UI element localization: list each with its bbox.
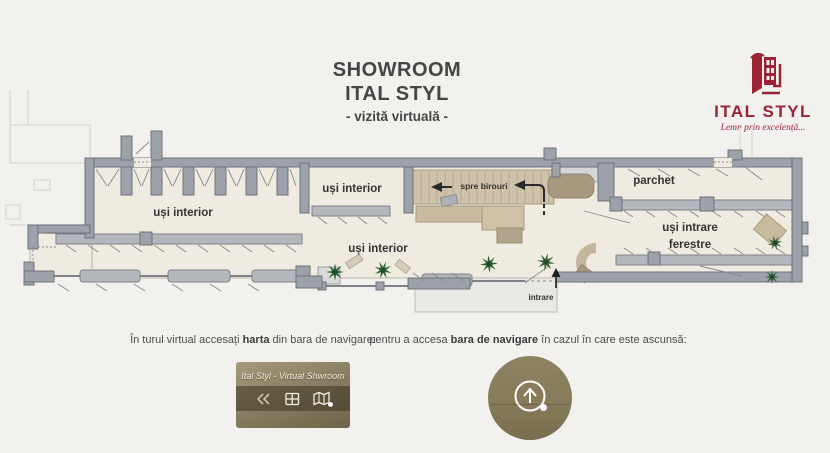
- storage-cabinet: [497, 228, 522, 243]
- up-arrow-icon: [507, 375, 553, 421]
- instruction-right-pre: pentru a accesa: [369, 334, 450, 346]
- navbar-icon-bar: [236, 386, 350, 411]
- instruction-left: În turul virtual accesați harta din bara…: [93, 334, 413, 346]
- instruction-right-bold: bara de navigare: [451, 334, 538, 346]
- cursor-dot: [328, 402, 333, 407]
- navbar-screenshot: Ital Styl - Virtual Shwroom: [236, 362, 350, 428]
- label-mid-top-zone: uși interior: [322, 183, 382, 195]
- instruction-left-bold: harta: [243, 334, 270, 346]
- label-right-zone-line2: ferestre: [669, 239, 711, 251]
- label-right-zone-line1: uși intrare: [662, 222, 718, 234]
- label-entrance: intrare: [529, 293, 554, 302]
- instruction-left-post: din bara de navigare:: [269, 334, 375, 346]
- navbar-title: Ital Styl - Virtual Shwroom: [236, 371, 350, 381]
- instruction-right-post: în cazul în care este ascunsă:: [538, 334, 687, 346]
- hotspot-screenshot: [488, 356, 572, 440]
- instruction-right: pentru a accesa bara de navigare în cazu…: [368, 334, 688, 346]
- hotspot-cursor-dot: [540, 404, 547, 411]
- label-mid-bottom-zone: uși interior: [348, 243, 408, 255]
- instruction-left-pre: În turul virtual accesați: [130, 334, 243, 346]
- label-right-top-zone: parchet: [633, 175, 675, 187]
- window-post: [376, 282, 384, 290]
- horizon-line: [491, 404, 568, 405]
- label-stairs: spre birouri: [460, 181, 507, 191]
- plant-icon: [326, 263, 344, 281]
- page: SHOWROOM ITAL STYL - vizită virtuală - I…: [0, 0, 830, 453]
- label-left-zone: uși interior: [153, 207, 213, 219]
- rewind-icon: [255, 392, 272, 406]
- plant-icon: [765, 270, 779, 284]
- map-icon-wrap: [313, 391, 331, 406]
- grid-icon: [285, 392, 300, 406]
- floorplan: uși interior uși interior uși interior s…: [0, 0, 830, 453]
